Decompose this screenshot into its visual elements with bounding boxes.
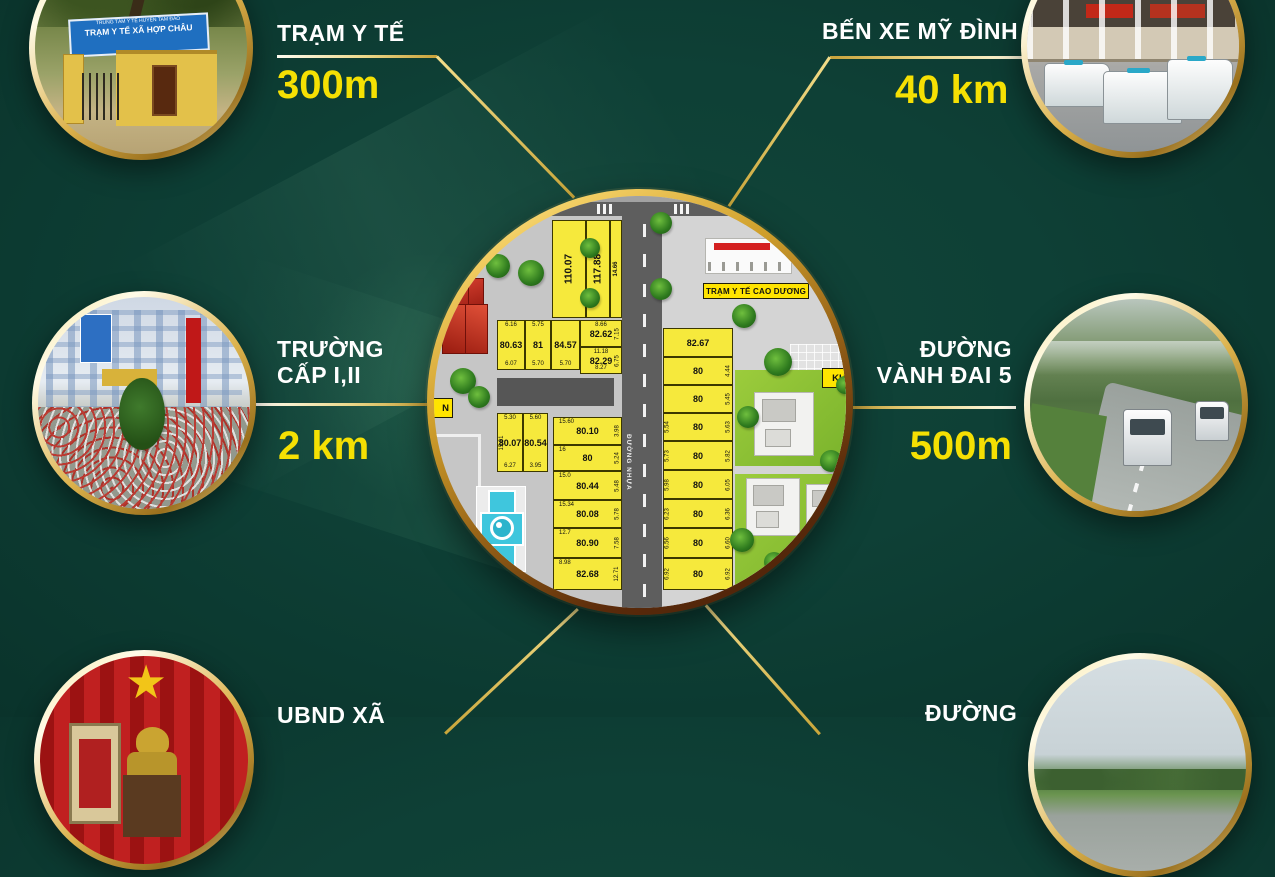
ring-road-photo	[1030, 299, 1242, 511]
ring-road-title-line2: VÀNH ĐAI 5	[877, 362, 1012, 388]
callout-title-ring-road: ĐƯỜNGVÀNH ĐAI 5	[860, 336, 1012, 388]
infographic-canvas: { "callouts": { "health_station": { "tit…	[0, 0, 1275, 717]
map-tree	[836, 376, 846, 394]
bust-statue	[127, 752, 177, 777]
photo-circle-bus-station	[1021, 0, 1245, 158]
bust-pedestal	[123, 775, 181, 837]
school-title-line1: TRƯỜNG	[277, 336, 384, 362]
schoolyard-tree	[119, 378, 166, 450]
building-columns	[1027, 0, 1239, 59]
connector-line-school	[256, 403, 427, 406]
map-tree	[732, 304, 756, 328]
connector-line-road-bottom	[705, 604, 821, 734]
school-title-line2: CẤP I,II	[277, 362, 361, 388]
map-tree	[650, 278, 672, 300]
gate-pillar	[63, 54, 84, 124]
photo-circle-commune-hall	[34, 650, 254, 870]
gold-star	[127, 664, 164, 701]
map-tree	[764, 552, 784, 572]
health-station-photo: TRUNG TÂM Y TẾ HUYỆN TAM ĐẢO TRẠM Y TẾ X…	[35, 0, 247, 154]
separator-line-bus	[830, 56, 1047, 59]
photo-circle-health-station: TRUNG TÂM Y TẾ HUYỆN TAM ĐẢO TRẠM Y TẾ X…	[29, 0, 253, 160]
master-plan-map: ĐƯỜNG NHỰA TRẠM Y TẾ CAO DƯƠNG KH N 110.…	[434, 196, 846, 608]
bus-station-photo	[1027, 0, 1239, 152]
red-banner	[186, 318, 201, 403]
connector-line-ringroad	[853, 406, 1016, 409]
gate-fence	[82, 73, 120, 120]
commune-hall-photo	[40, 656, 248, 864]
master-plan-map-circle: ĐƯỜNG NHỰA TRẠM Y TẾ CAO DƯƠNG KH N 110.…	[427, 189, 853, 615]
callout-title-commune-hall: UBND XÃ	[277, 702, 385, 728]
callout-title-road-bottom: ĐƯỜNG	[925, 700, 1017, 726]
school-photo	[38, 297, 250, 509]
separator-line-health	[277, 55, 437, 58]
callout-distance-ring-road: 500m	[860, 424, 1012, 469]
portrait-banner	[80, 314, 112, 363]
framed-certificate	[69, 723, 121, 825]
tree-layer	[434, 196, 846, 608]
callout-title-health-station: TRẠM Y TẾ	[277, 20, 405, 46]
horizon-haze	[1030, 341, 1242, 375]
map-tree	[820, 450, 842, 472]
station-door	[152, 65, 177, 116]
tree-line	[1034, 769, 1246, 790]
taxi-car	[1167, 59, 1233, 120]
map-tree	[650, 212, 672, 234]
map-tree	[764, 348, 792, 376]
map-tree	[737, 406, 759, 428]
connector-line-commune	[444, 608, 578, 734]
callout-distance-health-station: 300m	[277, 63, 379, 108]
map-tree	[518, 260, 544, 286]
map-tree	[730, 528, 754, 552]
photo-circle-ring-road	[1024, 293, 1248, 517]
map-tree	[468, 386, 490, 408]
connector-line-bus	[728, 57, 831, 207]
road-landscape-photo	[1034, 659, 1246, 871]
ring-road-title-line1: ĐƯỜNG	[920, 336, 1012, 362]
callout-title-school: TRƯỜNGCẤP I,II	[277, 336, 384, 388]
callout-distance-school: 2 km	[278, 424, 369, 469]
map-tree	[580, 238, 600, 258]
van-vehicle	[1195, 401, 1229, 441]
map-tree	[580, 288, 600, 308]
connector-line-health	[436, 55, 575, 198]
callout-title-bus-station: BẾN XE MỸ ĐÌNH	[822, 18, 1018, 44]
photo-circle-road-bottom	[1028, 653, 1252, 877]
taxi-car	[1044, 63, 1110, 107]
map-tree	[486, 254, 510, 278]
van-vehicle	[1123, 409, 1172, 466]
photo-circle-school	[32, 291, 256, 515]
callout-distance-bus-station: 40 km	[895, 68, 1008, 113]
